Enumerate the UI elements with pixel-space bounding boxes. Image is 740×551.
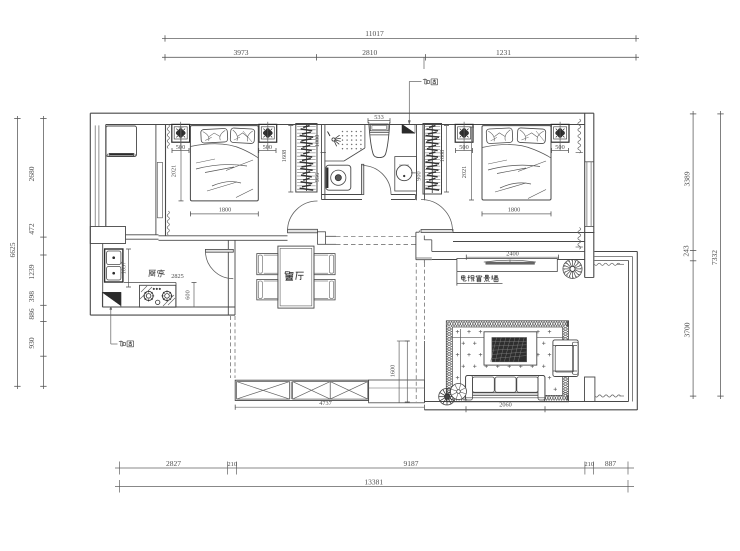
svg-text:398: 398: [27, 291, 36, 303]
svg-text:956: 956: [314, 173, 321, 182]
svg-text:210: 210: [227, 461, 237, 468]
svg-text:2825: 2825: [171, 273, 184, 280]
svg-text:3973: 3973: [234, 48, 249, 57]
svg-text:3700: 3700: [683, 322, 692, 337]
svg-text:1608: 1608: [439, 150, 446, 163]
svg-text:500: 500: [555, 144, 564, 151]
svg-text:9187: 9187: [404, 459, 419, 468]
svg-text:1608: 1608: [281, 150, 288, 163]
svg-text:533: 533: [374, 114, 383, 121]
svg-text:500: 500: [176, 144, 185, 151]
svg-text:1800: 1800: [219, 207, 232, 214]
svg-text:500: 500: [459, 144, 468, 151]
svg-text:4737: 4737: [319, 400, 332, 407]
svg-text:11017: 11017: [365, 29, 384, 38]
svg-text:1800: 1800: [508, 207, 521, 214]
svg-text:2810: 2810: [362, 48, 377, 57]
svg-text:600: 600: [184, 290, 191, 299]
svg-text:500: 500: [263, 144, 272, 151]
svg-text:2827: 2827: [166, 459, 181, 468]
svg-text:2680: 2680: [27, 166, 36, 181]
svg-text:3389: 3389: [683, 171, 692, 186]
svg-text:1600: 1600: [389, 365, 396, 378]
svg-text:7332: 7332: [710, 250, 719, 265]
svg-text:900: 900: [415, 171, 422, 180]
svg-text:13381: 13381: [364, 477, 383, 486]
svg-text:2060: 2060: [499, 402, 512, 409]
svg-text:1239: 1239: [27, 264, 36, 279]
svg-text:210: 210: [584, 461, 594, 468]
svg-text:2400: 2400: [506, 251, 519, 258]
svg-text:1231: 1231: [496, 48, 511, 57]
svg-text:6625: 6625: [8, 242, 17, 257]
svg-text:1000: 1000: [314, 135, 321, 148]
svg-text:243: 243: [682, 245, 691, 257]
svg-text:1037: 1037: [120, 262, 127, 275]
svg-text:472: 472: [27, 223, 36, 235]
svg-text:930: 930: [27, 337, 36, 349]
svg-text:887: 887: [605, 459, 617, 468]
svg-text:2021: 2021: [461, 166, 468, 179]
svg-text:886: 886: [27, 308, 36, 320]
svg-text:2021: 2021: [170, 165, 177, 178]
